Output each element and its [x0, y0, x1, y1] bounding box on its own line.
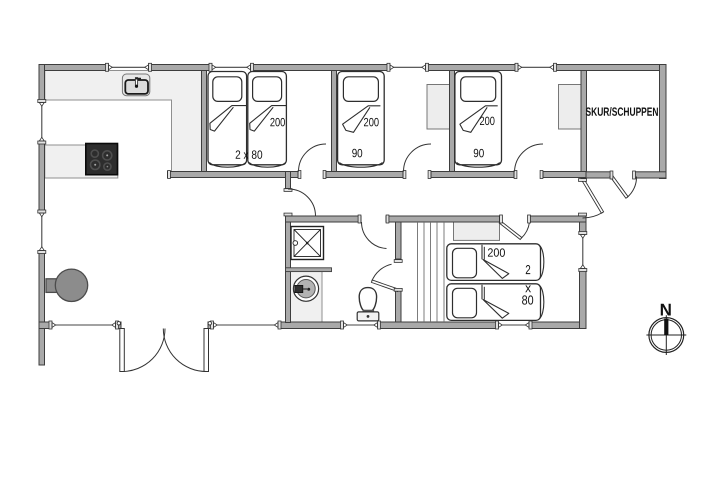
svg-text:N: N [660, 300, 672, 319]
svg-text:200: 200 [270, 115, 286, 129]
svg-text:2 x 80: 2 x 80 [235, 148, 263, 162]
svg-text:2: 2 [525, 262, 531, 277]
svg-text:90: 90 [473, 146, 484, 160]
svg-text:200: 200 [364, 115, 380, 129]
svg-text:90: 90 [352, 146, 363, 160]
svg-text:200: 200 [479, 114, 495, 128]
svg-text:SKUR/SCHUPPEN: SKUR/SCHUPPEN [585, 105, 658, 119]
svg-text:200: 200 [487, 246, 505, 260]
svg-text:80: 80 [522, 292, 534, 307]
